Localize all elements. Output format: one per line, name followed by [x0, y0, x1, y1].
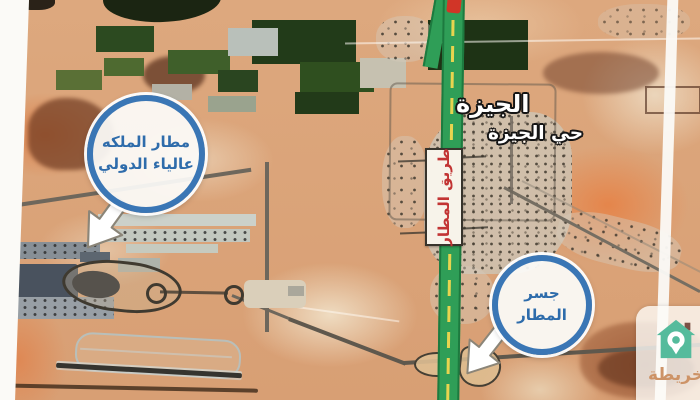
desert-wadi	[543, 52, 659, 94]
farm-field	[56, 70, 102, 90]
airport-callout-line2: عالياء الدولي	[98, 154, 194, 176]
airport-apron	[126, 244, 218, 253]
district-label: حي الجيزة	[488, 123, 583, 144]
airport-road-sign: طريق المطار	[425, 148, 463, 246]
airport-callout-line1: مطار الملكه	[102, 132, 190, 154]
farm-field	[104, 58, 144, 76]
city-label: الجيزة	[456, 90, 529, 118]
fallow-field	[228, 28, 278, 56]
bridge-callout-line1: جسر	[524, 283, 559, 305]
airport-callout: مطار الملكه عالياء الدولي	[87, 95, 205, 213]
brand-watermark: خريطة	[636, 306, 700, 400]
highway-marker	[446, 0, 462, 14]
bridge-callout: جسر المطار	[492, 255, 592, 355]
roundabout	[146, 283, 167, 304]
brand-logo-house-pin-icon	[653, 316, 699, 362]
farm-field	[218, 70, 258, 92]
farm-field	[295, 92, 359, 114]
fallow-field	[208, 96, 256, 112]
airport-road-sign-label: طريق المطار	[435, 148, 453, 246]
roundabout	[224, 285, 244, 305]
brand-name: خريطة	[648, 365, 700, 385]
annotated-satellite-map: طريق المطار الجيزة حي الجيزة مطار الملكه…	[0, 0, 700, 400]
farm-field	[96, 26, 154, 52]
bridge-callout-line2: المطار	[517, 305, 567, 327]
airport-building	[288, 286, 304, 296]
